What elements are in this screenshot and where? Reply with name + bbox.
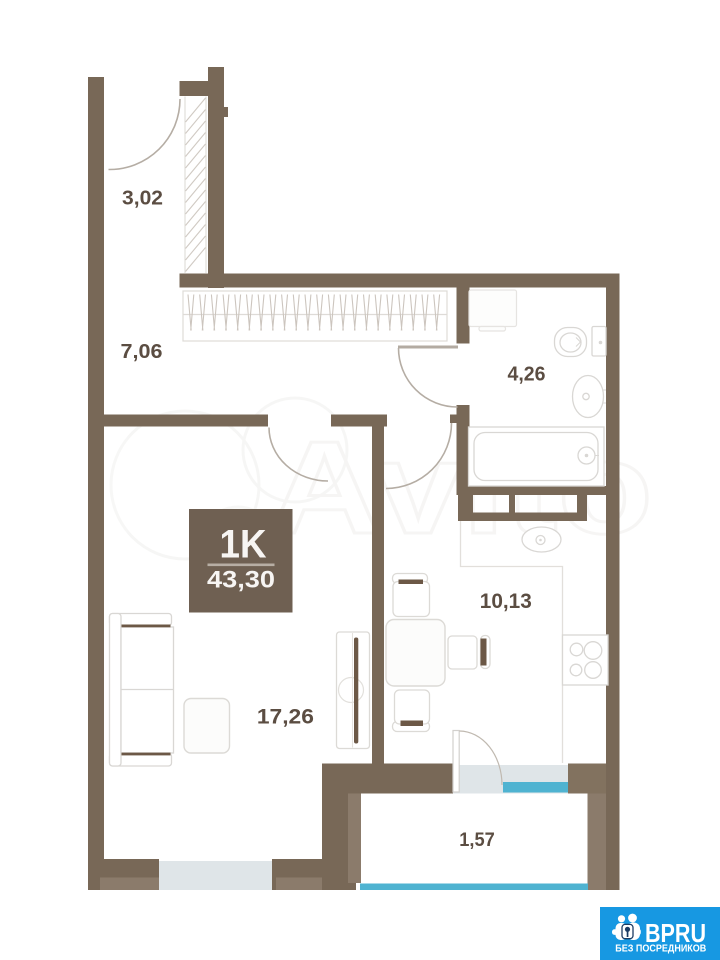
svg-text:1,57: 1,57 [459,830,495,851]
svg-text:10,13: 10,13 [480,590,532,613]
svg-text:3,02: 3,02 [122,188,163,210]
svg-text:7,06: 7,06 [121,341,163,363]
svg-text:1K: 1K [220,523,267,567]
svg-text:4,26: 4,26 [508,364,546,386]
svg-text:43,30: 43,30 [207,567,275,594]
svg-text:17,26: 17,26 [257,706,314,729]
svg-text:БЕЗ ПОСРЕДНИКОВ: БЕЗ ПОСРЕДНИКОВ [615,943,706,954]
